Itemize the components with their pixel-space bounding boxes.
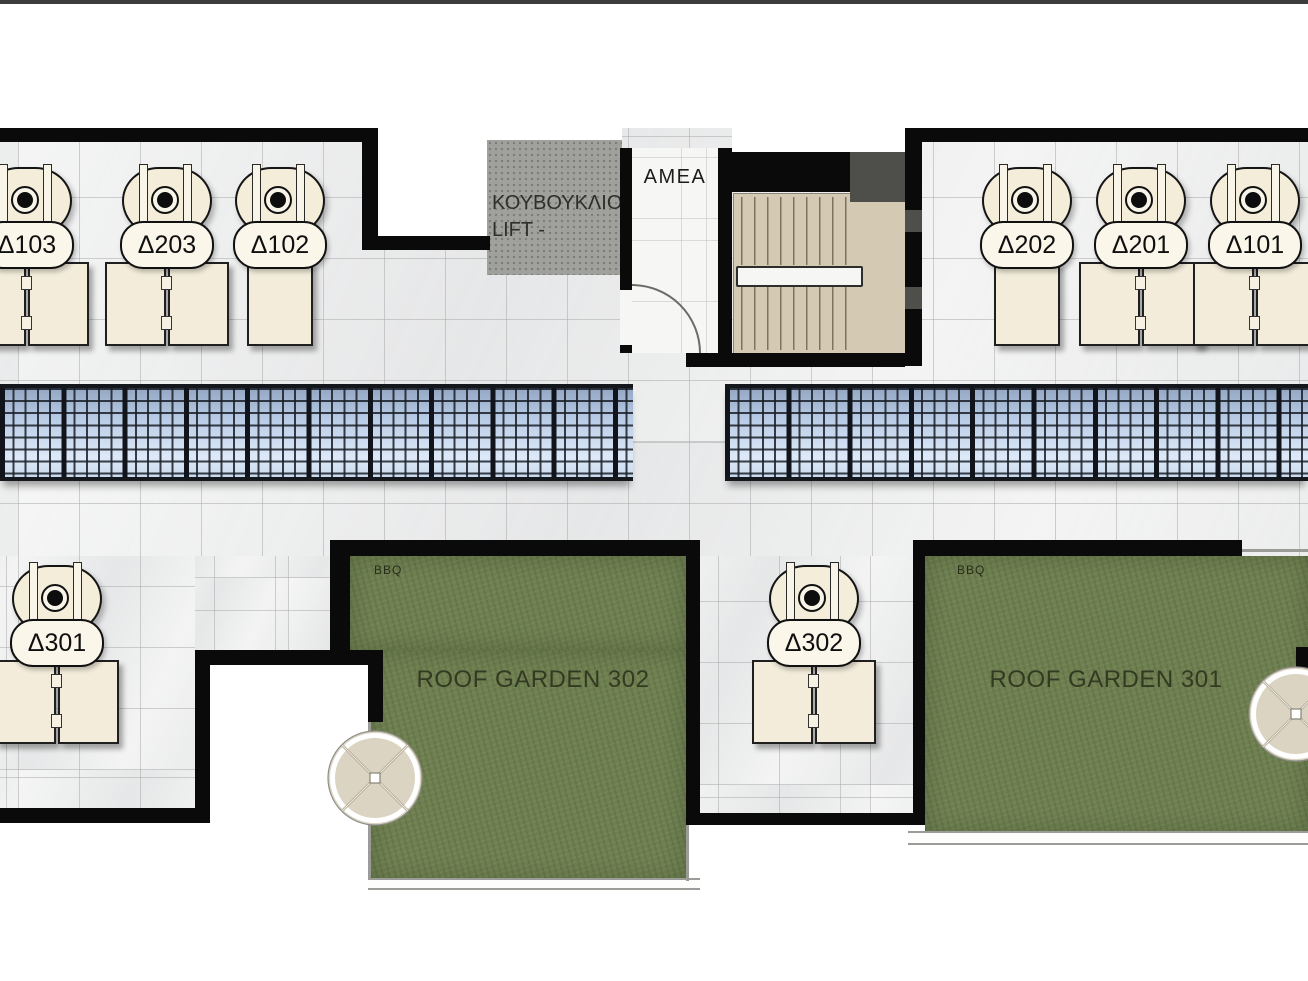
void-top-notch xyxy=(378,128,490,236)
wall-stairs-bottom xyxy=(686,353,905,367)
boiler-unit-d203: Δ203 xyxy=(103,167,227,344)
boiler-unit-d201: Δ201 xyxy=(1077,167,1201,344)
panel-connector xyxy=(808,714,819,728)
page-top-border xyxy=(0,0,1308,4)
collector-panel xyxy=(0,660,56,744)
lift-label-line2: LIFT - xyxy=(492,217,622,244)
wall-top-left xyxy=(0,128,378,142)
collector-panel xyxy=(28,262,89,346)
tank-cap xyxy=(47,590,63,606)
wall-garden302-left xyxy=(330,540,350,650)
unit-label: Δ103 xyxy=(0,231,56,260)
wall-pier-right-1 xyxy=(905,210,922,232)
wall-left-terrace-bottom xyxy=(0,808,210,823)
lift-cabin-box: ΚΟΥΒΟΥΚΛΙΟ LIFT - xyxy=(487,140,622,275)
garden-302-right-border xyxy=(686,825,689,881)
collector-panel xyxy=(247,262,313,346)
tank-cap xyxy=(1245,192,1261,208)
amea-door-opening xyxy=(620,290,632,345)
unit-label: Δ102 xyxy=(251,231,309,260)
collector-panel xyxy=(0,262,26,346)
void-bottom-left xyxy=(0,823,210,981)
boiler-unit-d202: Δ202 xyxy=(963,167,1087,344)
tank-cap xyxy=(270,192,286,208)
garden-301-bottom-border xyxy=(908,831,1308,845)
unit-label-plate: Δ202 xyxy=(980,221,1074,269)
void-under-garden-302 xyxy=(330,890,700,981)
panel-connector xyxy=(161,316,172,330)
terrace-left-mid xyxy=(195,556,330,650)
panel-connector xyxy=(51,714,62,728)
panel-connector xyxy=(51,674,62,688)
parasol-table xyxy=(1245,663,1308,765)
wall-right-core xyxy=(905,128,922,366)
panel-connector xyxy=(1249,276,1260,290)
unit-label-plate: Δ302 xyxy=(767,619,861,667)
stair-rail xyxy=(736,266,863,287)
panel-connector xyxy=(161,276,172,290)
wall-left-terrace-vertical xyxy=(195,650,210,823)
boiler-unit-d302: Δ302 xyxy=(750,565,874,742)
boiler-unit-d301: Δ301 xyxy=(0,565,117,742)
unit-label: Δ203 xyxy=(138,231,196,260)
unit-label: Δ302 xyxy=(785,629,843,658)
wall-step-vertical xyxy=(362,128,378,250)
lift-label-line1: ΚΟΥΒΟΥΚΛΙΟ xyxy=(492,190,622,217)
panel-connector xyxy=(21,316,32,330)
roof-garden-302-label: ROOF GARDEN 302 xyxy=(373,666,693,694)
wall-notch-horizontal xyxy=(195,650,383,665)
collector-panel xyxy=(1079,262,1140,346)
collector-panel xyxy=(58,660,119,744)
panel-connector xyxy=(1135,276,1146,290)
unit-label-plate: Δ103 xyxy=(0,221,74,269)
panel-connector xyxy=(1135,316,1146,330)
wall-step-horizontal xyxy=(378,236,490,250)
tank-cap xyxy=(17,192,33,208)
parasol-table xyxy=(324,727,426,829)
collector-panel xyxy=(1256,262,1308,346)
unit-label: Δ201 xyxy=(1112,231,1170,260)
wall-garden301-top xyxy=(913,540,1242,556)
garden-301-top-edge xyxy=(1242,549,1308,552)
bbq-label-garden-301: BBQ xyxy=(957,563,985,577)
wall-amea-right xyxy=(718,148,732,353)
wall-garden302-top xyxy=(330,540,700,556)
void-middle-bottom xyxy=(689,825,925,981)
collector-panel xyxy=(105,262,166,346)
wall-stairs-top xyxy=(732,152,850,192)
unit-label: Δ202 xyxy=(998,231,1056,260)
boiler-unit-d102: Δ102 xyxy=(216,167,340,344)
solar-array-left xyxy=(0,384,633,481)
panel-connector xyxy=(808,674,819,688)
tank-cap xyxy=(1017,192,1033,208)
tank-cap xyxy=(804,590,820,606)
boiler-unit-d103: Δ103 xyxy=(0,167,87,344)
collector-panel xyxy=(815,660,876,744)
roof-garden-301-label: ROOF GARDEN 301 xyxy=(946,666,1266,694)
lift-cabin-label: ΚΟΥΒΟΥΚΛΙΟ LIFT - xyxy=(492,190,622,244)
panel-connector xyxy=(1249,316,1260,330)
void-above-stairs xyxy=(732,128,905,152)
unit-label: Δ101 xyxy=(1226,231,1284,260)
collector-panel xyxy=(752,660,813,744)
boiler-unit-d101: Δ101 xyxy=(1191,167,1308,344)
void-above-liftbox xyxy=(487,128,622,140)
collector-panel xyxy=(1193,262,1254,346)
void-under-garden-301 xyxy=(908,845,1308,981)
wall-pier-stairs-top xyxy=(850,152,905,202)
tank-cap xyxy=(157,192,173,208)
roof-floor-plan: ΚΟΥΒΟΥΚΛΙΟ LIFT - AMEA ROOF GARDEN 302 R… xyxy=(0,0,1308,981)
collector-panel xyxy=(994,262,1060,346)
unit-label-plate: Δ301 xyxy=(10,619,104,667)
unit-label-plate: Δ201 xyxy=(1094,221,1188,269)
amea-label: AMEA xyxy=(632,166,718,189)
tank-cap xyxy=(1131,192,1147,208)
garden-302-bottom-border xyxy=(368,878,700,890)
wall-top-right xyxy=(905,128,1308,142)
wall-pier-right-2 xyxy=(905,287,922,309)
stair-treads-lower xyxy=(741,287,858,350)
unit-label: Δ301 xyxy=(28,629,86,658)
bbq-label-garden-302: BBQ xyxy=(374,563,402,577)
wall-middle-terrace-bottom xyxy=(686,813,925,825)
unit-label-plate: Δ101 xyxy=(1208,221,1302,269)
unit-label-plate: Δ203 xyxy=(120,221,214,269)
panel-connector xyxy=(21,276,32,290)
wall-garden301-left xyxy=(913,540,925,825)
unit-label-plate: Δ102 xyxy=(233,221,327,269)
stair-treads-upper xyxy=(741,197,858,265)
solar-array-right xyxy=(725,384,1308,481)
